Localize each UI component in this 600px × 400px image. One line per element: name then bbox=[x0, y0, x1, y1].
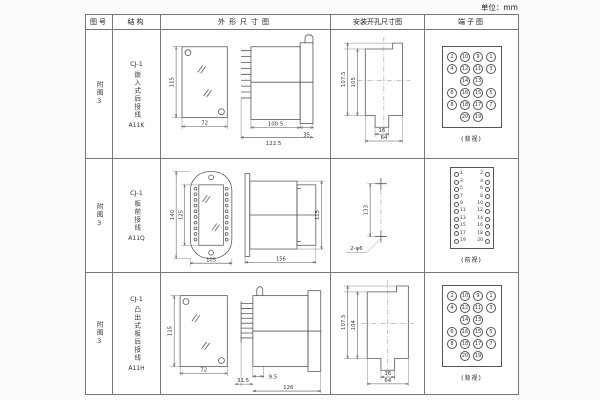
row3-figure-no: 附图3 bbox=[86, 273, 113, 395]
row2-figure-no: 附图3 bbox=[86, 159, 113, 273]
svg-text:9.5: 9.5 bbox=[268, 374, 277, 380]
figure-label: 附图3 bbox=[96, 321, 103, 347]
terminal-pin: 19 bbox=[473, 351, 483, 361]
terminal-pin: 9 bbox=[473, 291, 483, 301]
terminal-pin: 15 bbox=[473, 88, 483, 98]
terminal-pin: 18 bbox=[460, 339, 470, 349]
row1-mounting-cell: 107.5 105 16 64 bbox=[331, 30, 425, 159]
svg-text:115: 115 bbox=[315, 210, 321, 220]
terminal-pin: 9 bbox=[473, 52, 483, 62]
unit-label: 单位：mm bbox=[481, 2, 518, 13]
terminal-pin: 13 bbox=[473, 76, 483, 86]
svg-text:16: 16 bbox=[378, 128, 385, 134]
svg-text:2-φ6: 2-φ6 bbox=[350, 246, 363, 252]
svg-text:105: 105 bbox=[206, 257, 216, 263]
svg-text:122.5: 122.5 bbox=[265, 141, 280, 147]
model-label: CJ-1 bbox=[130, 189, 143, 197]
svg-text:126: 126 bbox=[283, 385, 294, 391]
terminal-pin: 10 bbox=[460, 291, 470, 301]
svg-text:156: 156 bbox=[275, 256, 285, 262]
terminal-pin: 5 bbox=[486, 327, 496, 337]
terminal-pin: 15 bbox=[473, 327, 483, 337]
terminal-pin: 7 bbox=[486, 100, 496, 110]
terminal-pin: 2 bbox=[447, 52, 457, 62]
terminal-pin: 16 bbox=[460, 327, 470, 337]
terminal-pin: 14 bbox=[460, 315, 470, 325]
terminal-pin: 17 bbox=[473, 100, 483, 110]
terminal-pin: 17 bbox=[473, 339, 483, 349]
row2-structure: CJ-1 板前接线 A11Q bbox=[113, 159, 161, 273]
terminal-pin: 2 bbox=[447, 291, 457, 301]
terminal-diagram-a11q: 12 34 56 78 910 1112 1314 1516 1718 1920… bbox=[450, 167, 494, 264]
mounting-drawing-a11h: 107.5 104 16 64 bbox=[332, 274, 424, 394]
svg-text:64: 64 bbox=[384, 377, 391, 383]
terminal-pin: 8 bbox=[447, 339, 457, 349]
terminal-pin: 8 bbox=[447, 100, 457, 110]
model-label: CJ-1 bbox=[130, 295, 143, 303]
row3-outline-cell: 115 72 9.5 31.5 126 bbox=[161, 273, 331, 395]
row1-figure-no: 附图3 bbox=[86, 30, 113, 159]
view-label: (背视) bbox=[461, 134, 482, 143]
svg-text:72: 72 bbox=[201, 120, 208, 126]
terminal-pin: 11 bbox=[473, 303, 483, 313]
header-figure-no: 图号 bbox=[86, 15, 113, 30]
svg-text:64: 64 bbox=[380, 135, 387, 141]
row3-mounting-cell: 107.5 104 16 64 bbox=[331, 273, 425, 395]
type-label: 凸出式板后接线 bbox=[133, 306, 140, 362]
terminal-pin: 12 bbox=[460, 303, 470, 313]
row2-terminal-cell: 12 34 56 78 910 1112 1314 1516 1718 1920… bbox=[425, 159, 519, 273]
header-terminal: 端子图 bbox=[425, 15, 519, 30]
svg-text:133: 133 bbox=[363, 204, 369, 214]
terminal-pin: 3 bbox=[486, 64, 496, 74]
terminal-pin: 16 bbox=[460, 88, 470, 98]
svg-text:107.5: 107.5 bbox=[341, 71, 347, 86]
svg-text:107.5: 107.5 bbox=[341, 314, 347, 329]
terminal-pin: 6 bbox=[447, 327, 457, 337]
terminal-pin: 1 bbox=[486, 291, 496, 301]
dimension-table: 图号 结构 外形尺寸图 安装开孔尺寸图 端子图 附图3 CJ-1 嵌入式后接线 … bbox=[85, 14, 519, 395]
svg-text:115: 115 bbox=[169, 77, 175, 87]
code-label: A11H bbox=[128, 365, 144, 372]
svg-text:100.5: 100.5 bbox=[267, 121, 282, 127]
terminal-pin: 20 bbox=[460, 351, 470, 361]
terminal-diagram-a11k: 2 10 9 1 4 12 11 3 14 13 6 16 15 5 8 bbox=[442, 46, 502, 143]
outline-drawing-a11q: 140 125 105 156 115 bbox=[162, 160, 330, 272]
svg-text:105: 105 bbox=[351, 77, 357, 87]
terminal-pin: 3 bbox=[486, 303, 496, 313]
terminal-pin: 6 bbox=[447, 88, 457, 98]
terminal-pin: 19 bbox=[473, 112, 483, 122]
terminal-pin: 14 bbox=[460, 76, 470, 86]
type-label: 嵌入式后接线 bbox=[133, 71, 140, 119]
svg-text:115: 115 bbox=[167, 325, 173, 335]
terminal-pin: 4 bbox=[447, 303, 457, 313]
svg-text:72: 72 bbox=[200, 367, 207, 373]
mounting-drawing-a11k: 107.5 105 16 64 bbox=[332, 31, 424, 158]
terminal-pin: 11 bbox=[473, 64, 483, 74]
row1-structure: CJ-1 嵌入式后接线 A11K bbox=[113, 30, 161, 159]
svg-text:16: 16 bbox=[384, 371, 391, 377]
header-mounting: 安装开孔尺寸图 bbox=[331, 15, 425, 30]
outline-drawing-a11k: 115 72 100.5 35 122.5 bbox=[162, 31, 330, 158]
terminal-pin: 20 bbox=[460, 112, 470, 122]
svg-text:31.5: 31.5 bbox=[237, 378, 249, 384]
svg-text:104: 104 bbox=[351, 319, 357, 330]
row3-structure: CJ-1 凸出式板后接线 A11H bbox=[113, 273, 161, 395]
terminal-pin: 7 bbox=[486, 339, 496, 349]
document-page: { "unit_label": "单位：mm", "headers": { "f… bbox=[0, 0, 600, 400]
row3-terminal-cell: 2 10 9 1 4 12 11 3 14 13 6 16 15 5 8 bbox=[425, 273, 519, 395]
terminal-diagram-a11h: 2 10 9 1 4 12 11 3 14 13 6 16 15 5 8 bbox=[442, 285, 502, 382]
figure-label: 附图3 bbox=[96, 203, 103, 229]
header-structure: 结构 bbox=[113, 15, 161, 30]
terminal-pin: 13 bbox=[473, 315, 483, 325]
row2-mounting-cell: 133 2-φ6 bbox=[331, 159, 425, 273]
row1-terminal-cell: 2 10 9 1 4 12 11 3 14 13 6 16 15 5 8 bbox=[425, 30, 519, 159]
view-label: (前视) bbox=[461, 255, 482, 264]
outline-drawing-a11h: 115 72 9.5 31.5 126 bbox=[162, 274, 330, 394]
code-label: A11K bbox=[129, 122, 145, 129]
view-label: (背视) bbox=[461, 373, 482, 382]
model-label: CJ-1 bbox=[130, 60, 143, 68]
terminal-pin: 4 bbox=[447, 64, 457, 74]
terminal-pin: 18 bbox=[460, 100, 470, 110]
mounting-drawing-a11q: 133 2-φ6 bbox=[332, 160, 424, 272]
terminal-pin: 12 bbox=[460, 64, 470, 74]
terminal-pin: 10 bbox=[460, 52, 470, 62]
row2-outline-cell: 140 125 105 156 115 bbox=[161, 159, 331, 273]
type-label: 板前接线 bbox=[133, 200, 140, 232]
header-outline: 外形尺寸图 bbox=[161, 15, 331, 30]
code-label: A11Q bbox=[128, 235, 144, 242]
row1-outline-cell: 115 72 100.5 35 122.5 bbox=[161, 30, 331, 159]
svg-text:125: 125 bbox=[178, 210, 184, 220]
terminal-pin: 5 bbox=[486, 88, 496, 98]
terminal-pin: 1 bbox=[486, 52, 496, 62]
figure-label: 附图3 bbox=[96, 81, 103, 107]
svg-text:140: 140 bbox=[169, 210, 175, 220]
